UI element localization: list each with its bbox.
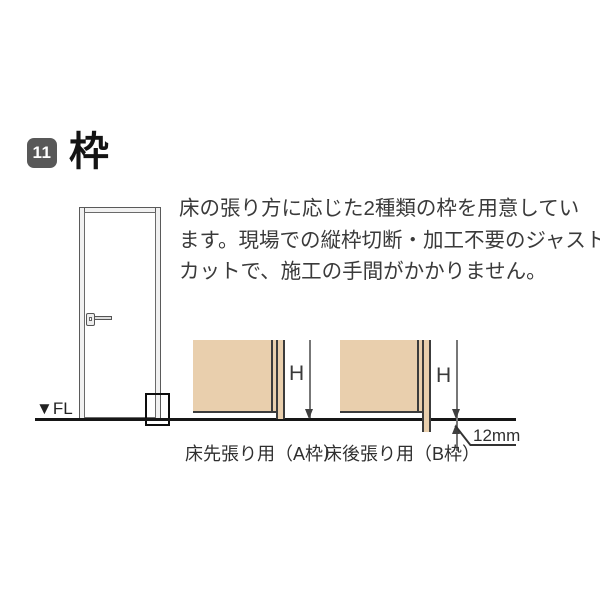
door-handle-lever — [94, 316, 112, 320]
diagram-b-arrow-down-icon — [452, 409, 460, 419]
floor-level-marker: ▼FL — [36, 399, 73, 419]
intro-line-2: ます。現場での縦枠切断・加工不要のジャスト — [179, 225, 584, 257]
diagram-b-height-label: H — [436, 364, 451, 388]
diagram-b-jamb — [422, 340, 431, 432]
frame-bottom-highlight-box — [145, 393, 170, 426]
diagram-b-height-dim-line — [456, 340, 458, 451]
diagram-b-offset-label: 12mm — [473, 426, 520, 446]
diagram-a-height-label: H — [289, 362, 304, 386]
intro-paragraph: 床の張り方に応じた2種類の枠を用意してい ます。現場での縦枠切断・加工不要のジャ… — [179, 193, 584, 288]
diagram-a-caption: 床先張り用（A枠） — [185, 440, 341, 466]
diagram-b-caption: 床後張り用（B枠） — [324, 440, 480, 466]
diagram-b-wall-edge-line — [417, 340, 419, 411]
diagram-b-wall — [340, 340, 422, 413]
intro-line-3: カットで、施工の手間がかかりません。 — [179, 256, 584, 288]
diagram-a-wall-edge-line — [271, 340, 273, 411]
diagram-a-jamb — [276, 340, 285, 419]
diagram-a-height-dim-line — [309, 340, 311, 418]
door-handle-rose — [89, 317, 92, 321]
section-number-badge: 11 — [27, 138, 57, 168]
page-title: 枠 — [69, 130, 109, 174]
intro-line-1: 床の張り方に応じた2種類の枠を用意してい — [179, 193, 584, 225]
diagram-a-arrow-down-icon — [305, 409, 313, 419]
catalog-page: 11 枠 床の張り方に応じた2種類の枠を用意してい ます。現場での縦枠切断・加工… — [0, 0, 600, 600]
diagram-a-wall — [193, 340, 276, 413]
